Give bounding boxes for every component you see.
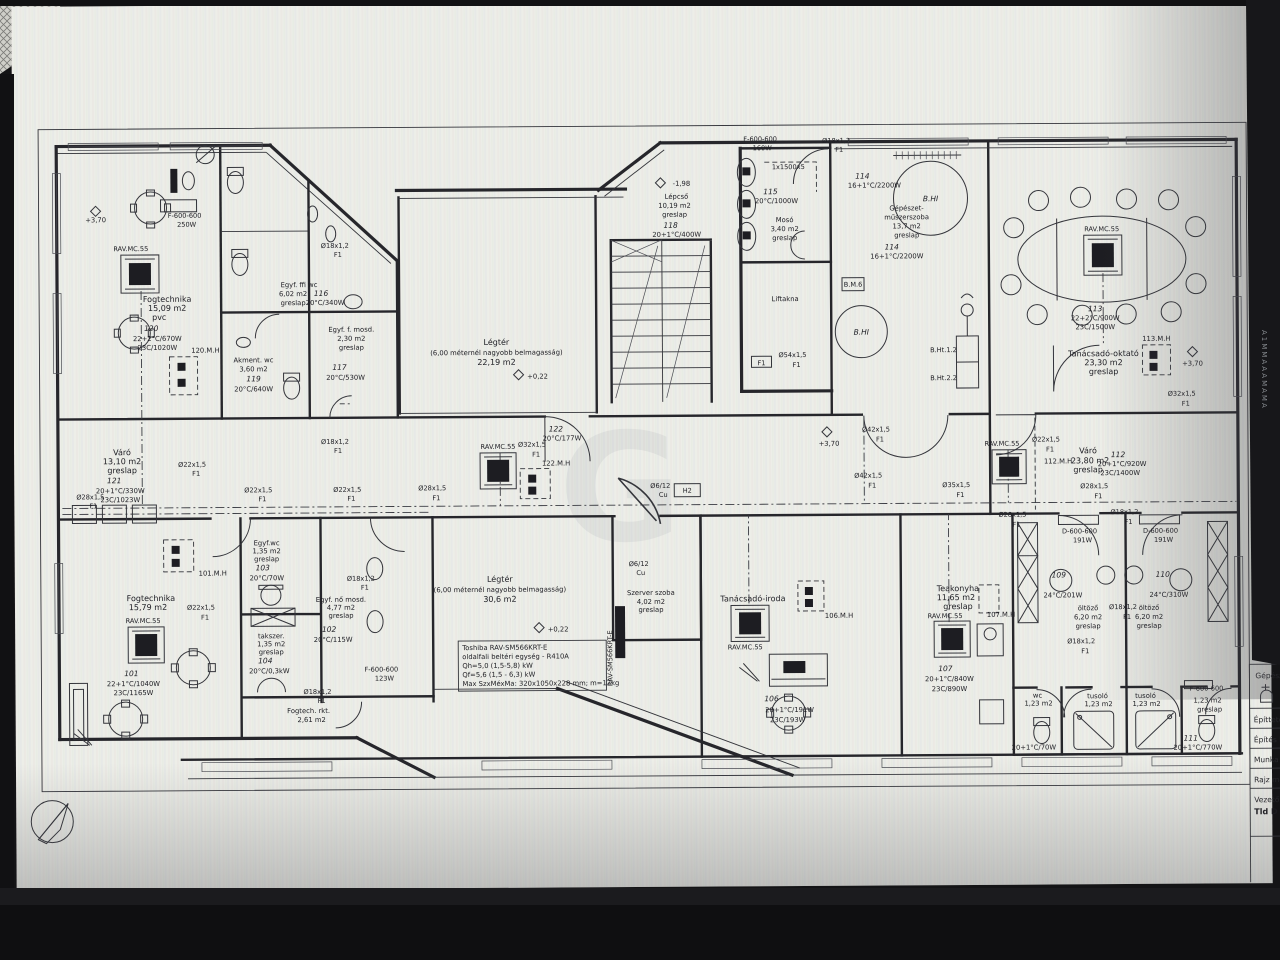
room-number: 122	[549, 424, 564, 433]
pipe-circuit: F1	[192, 470, 200, 478]
mh-tag: 101.M.H	[199, 570, 227, 578]
ac-unit-label: RAV.MC.55	[126, 617, 161, 625]
room-number: 117	[332, 363, 347, 372]
level-mark: +3,70	[85, 216, 106, 224]
room-area: 10,19 m2	[658, 202, 691, 210]
room-name: Teakonyha	[936, 584, 980, 593]
pipe-circuit: F1	[1046, 445, 1054, 453]
pipe-label: Ø28x1,5	[418, 484, 446, 492]
equip-tag: B.Ht.2.2	[930, 374, 957, 382]
room-floor: greslap	[281, 299, 306, 307]
room-subtitle: (6,00 méternél nagyobb belmagasság)	[430, 348, 563, 357]
room-name2: műszerszoba	[884, 212, 929, 221]
room-area: 3,40 m2	[771, 225, 799, 233]
room-subtitle: (6,00 méternél nagyobb belmagasság)	[434, 585, 567, 594]
room-heat: 20°C/530W	[326, 374, 365, 382]
room-heat2: 23C/1165W	[114, 689, 154, 697]
pipe-circuit: F1	[201, 614, 209, 622]
room-area: 13,7 m2	[893, 222, 921, 230]
ac-unit-label: RAV.MC.55	[481, 443, 516, 451]
pipe-label: Ø18x1,2	[1067, 637, 1095, 645]
room-name: Fogtech. rkt.	[287, 707, 330, 715]
room-number: 102	[322, 625, 337, 634]
room-heat: 20°C/115W	[314, 636, 353, 644]
level-mark: -1,98	[673, 180, 691, 188]
pipe-circuit: F1	[956, 491, 964, 499]
room-heat: 20°C/640W	[234, 385, 273, 393]
room-name: Légtér	[484, 337, 510, 347]
room-number: 118	[663, 221, 678, 230]
radiator-watt: 123W	[375, 675, 395, 683]
pipe-circuit: F1	[334, 447, 342, 455]
room-floor: greslap	[1197, 705, 1222, 713]
pipe-label: Ø22x1,5	[333, 486, 361, 494]
room-heat: 20°C/70W	[250, 574, 285, 582]
ac-unit-label: RAV.MC.55	[984, 440, 1019, 448]
pipe-circuit: H2	[683, 487, 692, 495]
unit-spec-line: Qf=5,6 (1,5 - 6,3) kW	[462, 671, 535, 679]
unit-spec-line: Toshiba RAV-SM566KRT-E	[461, 644, 547, 653]
room-number: 111	[1184, 734, 1198, 743]
room-name: Akment. wc	[233, 356, 273, 364]
mh-tag: 112.M.H	[1044, 457, 1072, 465]
unit-spec-line: Qh=5,0 (1,5-5,8) kW	[462, 662, 533, 670]
mh-tag: 107.M.H	[987, 611, 1015, 619]
ac-unit-label: RAV.MC.55	[728, 643, 763, 651]
mh-tag: 120.M.H	[191, 347, 219, 355]
pipe-label: Ø42x1,5	[862, 425, 890, 433]
room-name: Váró	[113, 447, 131, 457]
radiator-label: F-600-600	[168, 212, 202, 220]
floorplan-drawing: G	[0, 0, 1280, 960]
room-name: Egyf.wc	[254, 539, 280, 547]
room-number: 107	[938, 664, 953, 673]
room-heat: 20°C/0,3kW	[249, 667, 290, 675]
room-heat: 22+1°C/1040W	[107, 680, 160, 688]
room-heat2: 23C/1020W	[138, 344, 178, 352]
radiator-label: F-600-600	[743, 135, 777, 143]
room-floor: greslap	[328, 612, 353, 620]
room-number: 103	[256, 563, 271, 572]
titleblock-row: Építtető	[1254, 715, 1280, 724]
room-floor: greslap	[943, 602, 973, 611]
room-heat: 20+1°C/70W	[1012, 743, 1057, 751]
room-number: 121	[107, 476, 121, 485]
room-number: 116	[314, 289, 329, 298]
pipe-circuit: F1	[868, 482, 876, 490]
pipe-label: Ø18x1,2	[822, 137, 850, 145]
room-area: 15,09 m2	[148, 304, 186, 313]
pipe-circuit: F1	[432, 494, 440, 502]
photo-shadow-right	[1097, 0, 1271, 700]
pipe-label: Ø32x1,5	[518, 441, 546, 449]
radiator-label: D-600-600	[1062, 527, 1097, 535]
pipe-label: Ø22x1,5	[187, 604, 215, 612]
pipe-material: Cu	[659, 491, 668, 499]
room-floor: greslap	[638, 606, 663, 614]
equip-note: 1x1500x5	[772, 163, 805, 171]
radiator-label: F-600-600	[364, 665, 398, 673]
equip-tag: B.M.6	[844, 281, 863, 289]
pipe-circuit: F1	[1012, 521, 1020, 529]
room-area: 3,60 m2	[239, 365, 267, 373]
titleblock-row: Építés h	[1254, 735, 1280, 744]
room-area: 2,61 m2	[298, 716, 326, 724]
pipe-circuit: F1	[334, 251, 342, 259]
pipe-label: Ø22x1,5	[178, 461, 206, 469]
room-heat: 16+1°C/2200W	[870, 252, 923, 260]
pipe-label: Ø6/12	[629, 560, 649, 568]
room-heat: 20+1°C/191W	[765, 706, 814, 714]
room-number: 119	[246, 374, 261, 383]
pipe-label: Ø6/12	[650, 482, 670, 490]
room-name: Egyf. nő mosd.	[316, 595, 366, 604]
pipe-label: Ø18x1,2	[321, 242, 349, 250]
room-heat: 20°C/1000W	[755, 197, 798, 205]
room-number: 104	[258, 656, 273, 665]
room-floor: greslap	[772, 234, 797, 242]
tank-tag: B.HI	[854, 328, 870, 337]
pipe-circuit: F1	[347, 495, 355, 503]
room-heat: 20+1°C/400W	[652, 231, 701, 239]
pipe-circuit: F1	[757, 359, 765, 367]
room-area: 4,77 m2	[327, 604, 355, 612]
room-heat: 24°C/201W	[1044, 591, 1083, 599]
room-name: Egyf. f. mosd.	[328, 326, 374, 334]
pipe-circuit: F1	[89, 502, 97, 510]
room-number: 114	[855, 172, 870, 181]
room-number: 106	[764, 694, 779, 703]
pipe-circuit: F1	[876, 436, 884, 444]
pipe-label: Ø22x1,5	[244, 486, 272, 494]
level-mark: +0,22	[527, 373, 548, 381]
room-area: 13,10 m2	[103, 457, 141, 466]
room-area: 22,19 m2	[477, 358, 515, 367]
room-number: 109	[1052, 570, 1067, 579]
radiator-watt: 191W	[1073, 536, 1093, 544]
pipe-circuit: F1	[258, 495, 266, 503]
room-name: Gépészet-	[889, 204, 924, 212]
pipe-circuit: F1	[361, 584, 369, 592]
wall-unit	[615, 606, 625, 658]
room-area: 1,23 m2	[1024, 699, 1052, 707]
radiator-watt: 160W	[753, 144, 773, 152]
pipe-label: Ø35x1,5	[942, 481, 970, 489]
room-name: Egyf. ffi wc	[281, 281, 318, 289]
room-floor: greslap	[894, 231, 919, 239]
room-floor: greslap	[254, 555, 279, 563]
room-area: 1,23 m2	[1132, 700, 1160, 708]
room-heat2: 23C/193W	[770, 716, 806, 724]
room-heat: 20+1°C/840W	[925, 675, 974, 683]
mh-tag: 106.M.H	[825, 612, 853, 620]
room-number: 120	[144, 324, 159, 333]
level-mark: +0,22	[548, 625, 569, 633]
pipe-label: Ø28x1,5	[998, 511, 1026, 519]
pipe-circuit: F1	[318, 697, 326, 705]
ac-unit-label: RAV.MC.55	[928, 612, 963, 620]
pipe-circuit: F1	[835, 146, 843, 154]
pipe-circuit: F1	[792, 361, 800, 369]
room-area: 6,20 m2	[1074, 613, 1102, 621]
room-heat2: 23C/890W	[932, 685, 968, 693]
room-name: Fogtechnika	[127, 594, 176, 603]
room-number: 115	[763, 187, 778, 196]
pipe-label: Ø22x1,5	[1032, 435, 1060, 443]
room-name: Mosó	[776, 216, 794, 224]
room-floor: greslap	[1076, 622, 1101, 630]
room-area: 11,65 m2	[937, 593, 975, 602]
radiator-watt: 250W	[177, 221, 197, 229]
room-floor: greslap	[662, 211, 687, 219]
pipe-circuit: F1	[532, 451, 540, 459]
unit-spec-line: oldalfali beltéri egység - R410A	[462, 652, 569, 661]
room-number: 101	[124, 669, 138, 678]
room-area: 30,6 m2	[483, 595, 516, 604]
room-area: 1,23 m2	[1084, 700, 1112, 708]
room-floor: greslap	[107, 466, 137, 475]
pipe-label: Ø18x1,2	[347, 575, 375, 583]
room-area: 2,30 m2	[337, 335, 365, 343]
mh-tag: 122.M.H	[542, 459, 570, 467]
room-floor: greslap	[259, 648, 284, 656]
room-name: takszer.	[258, 632, 284, 640]
pipe-material: Cu	[636, 569, 645, 577]
room-name: Szerver szoba	[627, 589, 675, 597]
room-heat: 20°C/177W	[543, 434, 582, 442]
pipe-label: Ø18x1,2	[303, 688, 331, 696]
room-heat: 16+1°C/2200W	[848, 181, 901, 189]
room-area: 1,35 m2	[252, 547, 280, 555]
room-area: 4,02 m2	[637, 598, 665, 606]
room-name: Lépcső	[665, 192, 689, 201]
pipe-circuit: F1	[1081, 647, 1089, 655]
room-name: wc	[1033, 692, 1043, 700]
room-name: Tanácsadó-iroda	[719, 593, 785, 603]
pipe-label: Ø28x1,5	[76, 493, 104, 501]
room-name: Liftakna	[771, 295, 798, 303]
room-heat: 20°C/340W	[306, 299, 345, 307]
photo-shadow-bottom	[16, 756, 1273, 891]
room-heat: 20+1°C/770W	[1173, 743, 1222, 751]
room-floor: greslap	[339, 344, 364, 352]
equip-tag: B.Ht.1.2	[930, 346, 957, 354]
room-area: 15,79 m2	[129, 603, 167, 612]
room-name: Fogtechnika	[143, 295, 192, 304]
paper-sheet: G	[11, 0, 1280, 891]
edge-note: A1MMAAAMAMA	[1260, 330, 1268, 410]
room-name: öltöző	[1078, 603, 1099, 612]
room-number: 114	[885, 242, 900, 251]
room-heat2: 23C/1023W	[100, 496, 140, 504]
photo-of-floorplan: G	[0, 0, 1280, 960]
room-area: 6,02 m2	[279, 290, 307, 298]
pipe-label: Ø54x1,5	[778, 351, 806, 359]
room-heat: 22+2°C/670W	[133, 335, 182, 343]
room-area: 1,35 m2	[257, 640, 285, 648]
mirror	[170, 169, 177, 193]
wall-unit-label: RAV-SM566KRT-E	[606, 630, 614, 686]
ac-unit-label: RAV.MC.55	[113, 245, 148, 253]
pipe-label: Ø42x1,5	[854, 472, 882, 480]
room-name: Váró	[1079, 445, 1097, 455]
room-floor: pvc	[152, 313, 166, 322]
tank-tag: B.HI	[923, 194, 939, 203]
room-name: Légtér	[487, 574, 513, 584]
pipe-label: Ø18x1,2	[321, 438, 349, 446]
unit-spec-line: Max SzxMéxMa: 320x1050x228 mm; m=12kg	[462, 679, 619, 688]
level-mark: +3,70	[819, 440, 840, 448]
